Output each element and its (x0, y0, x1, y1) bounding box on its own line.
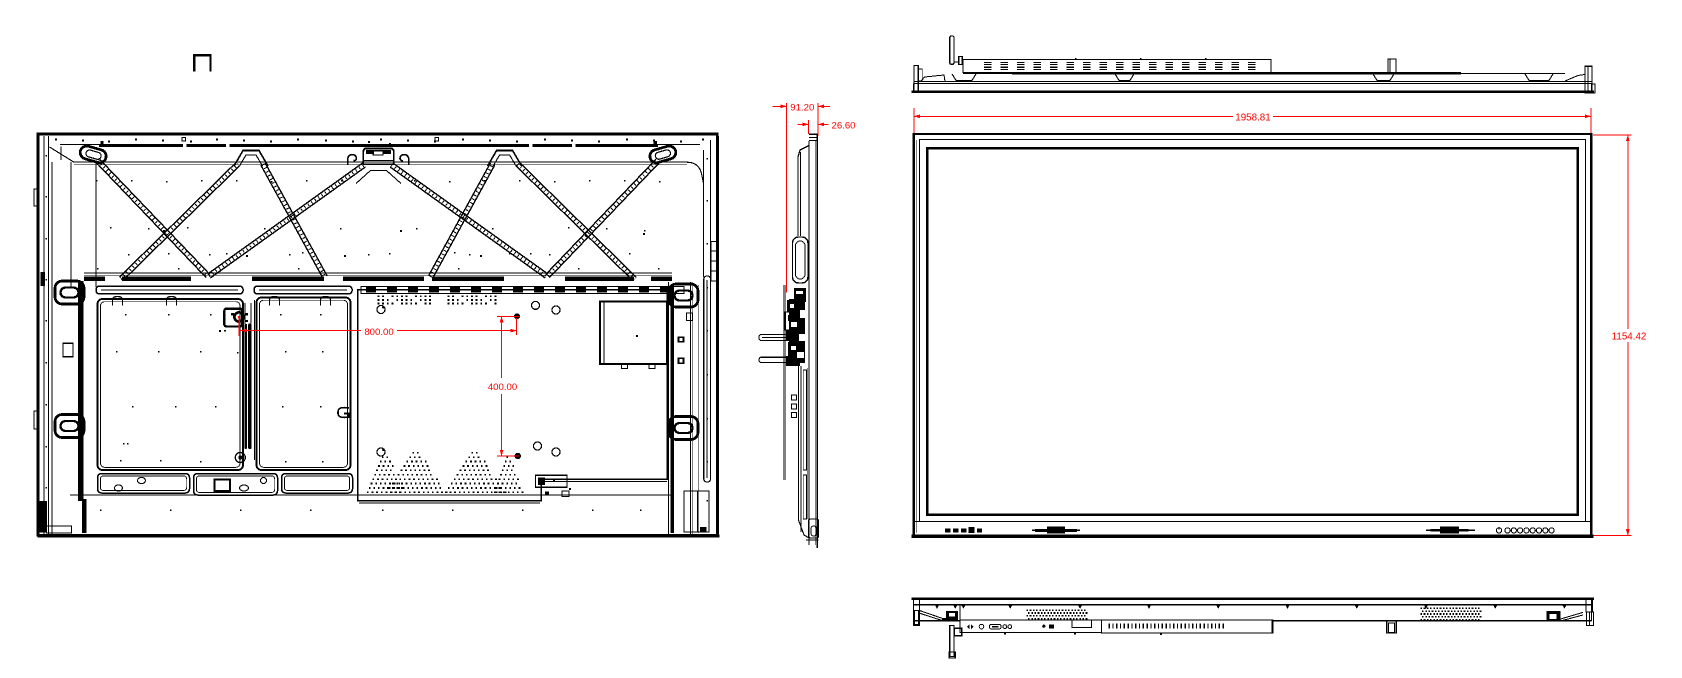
svg-text:26.60: 26.60 (831, 120, 855, 131)
svg-text:800.00: 800.00 (364, 327, 393, 338)
svg-text:400.00: 400.00 (488, 382, 517, 393)
svg-text:1154.42: 1154.42 (1612, 332, 1647, 343)
svg-text:1958.81: 1958.81 (1235, 112, 1270, 123)
svg-text:91.20: 91.20 (790, 102, 814, 113)
